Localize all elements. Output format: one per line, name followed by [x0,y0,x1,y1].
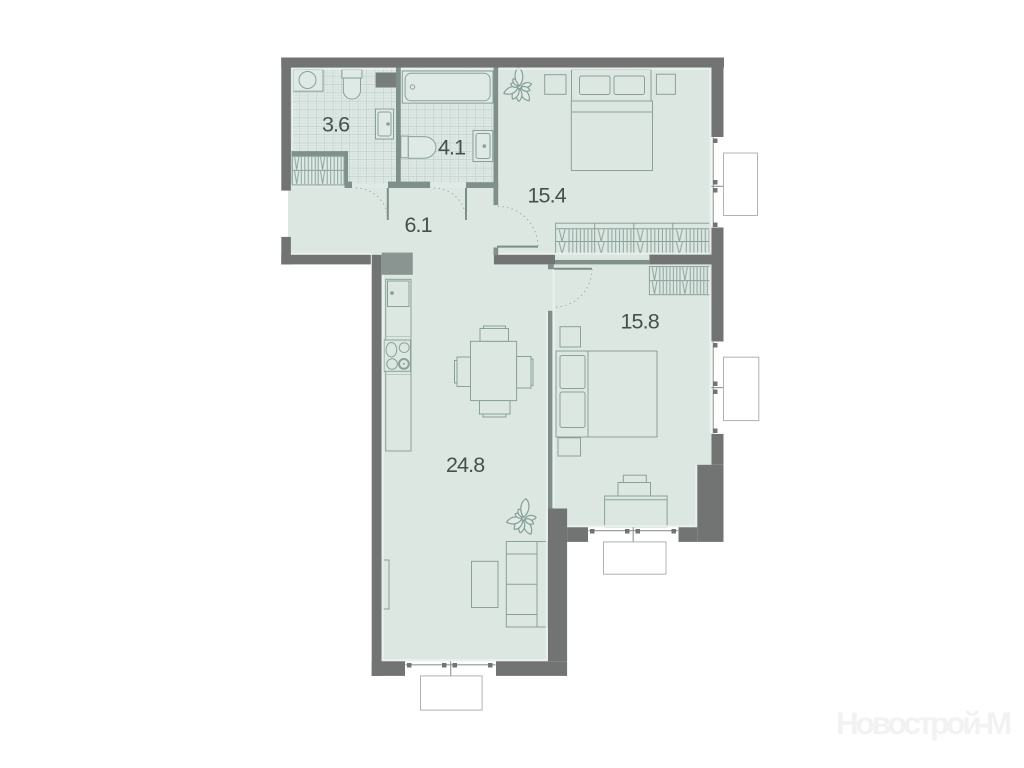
svg-text:Новострой-М: Новострой-М [836,705,1011,741]
svg-text:6.1: 6.1 [405,213,432,237]
svg-text:15.4: 15.4 [528,183,567,207]
svg-text:4.1: 4.1 [438,135,465,159]
svg-text:15.8: 15.8 [621,309,660,333]
svg-text:3.6: 3.6 [322,113,350,137]
svg-text:24.8: 24.8 [446,453,485,477]
